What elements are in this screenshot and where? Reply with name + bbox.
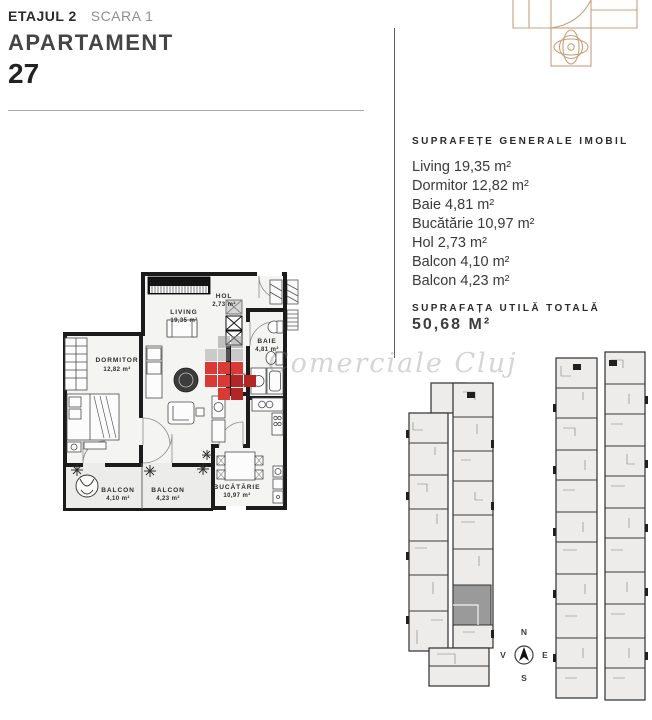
stair-label: SCARA 1 xyxy=(91,8,154,24)
apartment-sheet: ETAJUL 2 SCARA 1 APARTAMENT 27 SUPRAFEȚE… xyxy=(0,0,652,720)
apartment-label: APARTAMENT xyxy=(8,30,174,56)
room-label-balcon-2: BALCON xyxy=(151,487,185,494)
surface-value: 4,81 m² xyxy=(445,196,494,215)
room-label-baie: BAIE xyxy=(257,338,276,345)
surface-row: Baie4,81 m² xyxy=(412,196,535,215)
surface-label: Hol xyxy=(412,234,434,253)
vertical-divider xyxy=(394,28,395,358)
surface-label: Baie xyxy=(412,196,441,215)
total-title: SUPRAFAȚA UTILĂ TOTALĂ xyxy=(412,303,600,314)
room-area-living: 19,35 m² xyxy=(170,317,197,324)
room-area-balcon-1: 4,10 m² xyxy=(106,495,129,502)
compass-south-label: S xyxy=(521,673,527,683)
key-plan-building-right xyxy=(553,350,649,706)
surface-label: Balcon xyxy=(412,272,456,291)
room-label-living: LIVING xyxy=(170,309,197,316)
compass-needle xyxy=(519,647,529,661)
surface-row: Bucătărie10,97 m² xyxy=(412,215,535,234)
surface-value: 19,35 m² xyxy=(454,158,511,177)
apartment-number: 27 xyxy=(8,58,39,90)
room-label-bucatarie: BUCĂTĂRIE xyxy=(214,482,261,491)
surfaces-title: SUPRAFEȚE GENERALE IMOBIL xyxy=(412,136,629,147)
header-line: ETAJUL 2 SCARA 1 xyxy=(8,8,153,24)
room-area-hol: 2,73 m² xyxy=(212,301,235,308)
key-plan-building-left xyxy=(403,380,503,692)
compass-west-label: V xyxy=(500,650,506,660)
surface-row: Balcon4,10 m² xyxy=(412,253,535,272)
surface-value: 12,82 m² xyxy=(472,177,529,196)
total-value: 50,68 M² xyxy=(412,316,491,334)
surfaces-list: Living19,35 m² Dormitor12,82 m² Baie4,81… xyxy=(412,158,535,291)
surface-value: 2,73 m² xyxy=(438,234,487,253)
compass-north-label: N xyxy=(521,627,527,637)
surface-label: Balcon xyxy=(412,253,456,272)
room-label-hol: HOL xyxy=(216,293,233,300)
surface-value: 4,23 m² xyxy=(460,272,509,291)
room-label-balcon-1: BALCON xyxy=(101,487,135,494)
room-area-bucatarie: 10,97 m² xyxy=(223,492,250,499)
surface-row: Dormitor12,82 m² xyxy=(412,177,535,196)
compass-east-label: E xyxy=(542,650,548,660)
surface-label: Living xyxy=(412,158,450,177)
horizontal-divider xyxy=(8,110,364,111)
watermark-text: Comerciale Cluj xyxy=(268,348,518,379)
surface-row: Balcon4,23 m² xyxy=(412,272,535,291)
surface-row: Living19,35 m² xyxy=(412,158,535,177)
room-label-dormitor: DORMITOR xyxy=(96,357,139,364)
brand-logo xyxy=(505,0,645,78)
apartment-floor-plan: LIVING 19,35 m² HOL 2,73 m² BAIE 4,81 m²… xyxy=(60,268,300,520)
surface-label: Bucătărie xyxy=(412,215,473,234)
surface-value: 10,97 m² xyxy=(477,215,534,234)
room-area-dormitor: 12,82 m² xyxy=(103,366,130,373)
surface-row: Hol2,73 m² xyxy=(412,234,535,253)
compass: N V E S xyxy=(496,622,552,684)
room-area-balcon-2: 4,23 m² xyxy=(156,495,179,502)
floor-label: ETAJUL 2 xyxy=(8,8,77,24)
room-area-baie: 4,81 m² xyxy=(255,346,278,353)
surface-value: 4,10 m² xyxy=(460,253,509,272)
surface-label: Dormitor xyxy=(412,177,468,196)
